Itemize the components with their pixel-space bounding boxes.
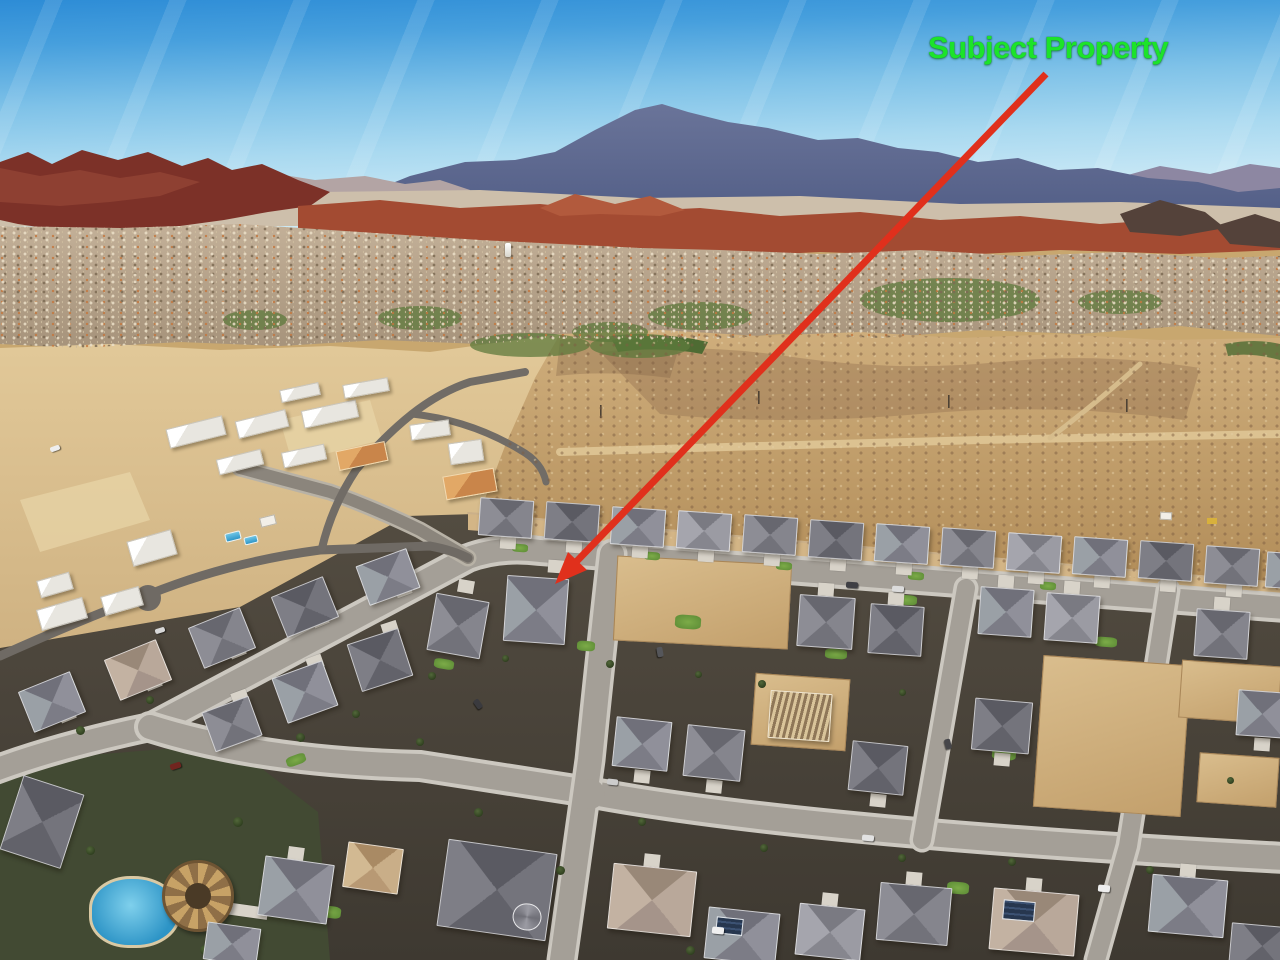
subject-property-label: Subject Property bbox=[928, 30, 1168, 66]
scene-objects bbox=[0, 0, 1280, 960]
car bbox=[712, 926, 725, 934]
shrub bbox=[556, 866, 565, 875]
lawn-patch bbox=[1095, 636, 1118, 648]
shrub bbox=[758, 680, 766, 688]
house-roof bbox=[808, 519, 865, 561]
house-roof bbox=[257, 855, 335, 924]
driveway bbox=[548, 559, 565, 573]
driveway bbox=[993, 752, 1010, 766]
driveway bbox=[869, 793, 886, 808]
shrub bbox=[86, 846, 95, 855]
house-roof bbox=[796, 594, 855, 650]
community-pool bbox=[224, 530, 242, 543]
subject-property-house bbox=[503, 575, 569, 645]
car bbox=[862, 834, 874, 841]
apartment-building bbox=[409, 419, 451, 440]
driveway bbox=[457, 578, 475, 594]
driveway bbox=[905, 871, 922, 885]
aerial-photo: Subject Property bbox=[0, 0, 1280, 960]
shrub bbox=[760, 844, 768, 852]
driveway bbox=[888, 591, 905, 605]
shrub bbox=[1008, 858, 1016, 866]
driveway bbox=[633, 769, 650, 784]
shrub bbox=[352, 710, 360, 718]
shrub bbox=[606, 660, 614, 668]
house-roof bbox=[436, 839, 557, 941]
apartment-building bbox=[36, 572, 74, 599]
house-roof bbox=[478, 497, 535, 539]
house-roof bbox=[876, 882, 953, 946]
lawn-patch bbox=[577, 640, 596, 651]
house-roof bbox=[940, 527, 997, 569]
car bbox=[49, 444, 60, 452]
house-roof bbox=[426, 593, 489, 659]
shrub bbox=[233, 817, 243, 827]
lawn-patch bbox=[675, 614, 702, 630]
dirt-lot bbox=[612, 555, 791, 649]
driveway bbox=[1254, 737, 1271, 751]
apartment-building bbox=[100, 586, 144, 616]
house-roof bbox=[767, 690, 832, 742]
house-roof bbox=[18, 671, 86, 733]
driveway bbox=[1179, 863, 1196, 877]
car bbox=[892, 586, 904, 593]
shrub bbox=[474, 808, 483, 817]
house-roof bbox=[971, 698, 1033, 755]
apartment-building bbox=[126, 529, 177, 567]
house-roof bbox=[271, 576, 339, 638]
apartment-building bbox=[301, 399, 360, 428]
shrub bbox=[76, 726, 85, 735]
house-roof bbox=[104, 639, 172, 701]
house-roof bbox=[347, 628, 414, 692]
shrub bbox=[899, 689, 906, 696]
house-roof bbox=[1072, 536, 1129, 578]
house-roof bbox=[271, 660, 338, 724]
apartment-building bbox=[342, 377, 390, 399]
construction-machine bbox=[1207, 518, 1217, 524]
house-roof bbox=[355, 548, 420, 606]
car bbox=[606, 778, 618, 785]
driveway bbox=[1064, 580, 1081, 594]
house-roof bbox=[794, 903, 865, 960]
shrub bbox=[1146, 866, 1154, 874]
lawn-patch bbox=[285, 752, 307, 768]
shrub bbox=[502, 655, 509, 662]
house-roof bbox=[1228, 922, 1280, 960]
house-roof bbox=[848, 740, 909, 796]
gazebo bbox=[162, 860, 234, 932]
shrub bbox=[416, 738, 424, 746]
lawn-patch bbox=[433, 657, 454, 670]
car bbox=[944, 738, 952, 749]
house-roof bbox=[203, 921, 262, 960]
shrub bbox=[638, 818, 646, 826]
shed bbox=[1160, 512, 1172, 521]
driveway bbox=[705, 779, 722, 794]
shrub bbox=[428, 672, 436, 680]
driveway bbox=[643, 853, 660, 868]
shrub bbox=[686, 946, 695, 955]
apartment-building-orange bbox=[442, 468, 497, 501]
community-pool bbox=[243, 534, 259, 545]
house-roof bbox=[1235, 689, 1280, 738]
shrub bbox=[695, 671, 702, 678]
dirt-lot bbox=[1196, 752, 1279, 807]
house-roof bbox=[612, 716, 673, 772]
shrub bbox=[146, 696, 154, 704]
apartment-building bbox=[216, 449, 265, 476]
car bbox=[656, 647, 664, 658]
apartment-building-orange bbox=[335, 441, 388, 471]
driveway bbox=[1025, 877, 1042, 891]
shrub bbox=[898, 854, 906, 862]
house-roof bbox=[342, 841, 404, 894]
house-roof bbox=[1006, 532, 1063, 574]
house-roof bbox=[1043, 592, 1100, 644]
apartment-building bbox=[448, 439, 485, 466]
house-roof bbox=[742, 514, 799, 556]
car bbox=[1098, 884, 1111, 892]
driveway bbox=[1214, 596, 1231, 610]
house-roof bbox=[201, 696, 262, 753]
shed bbox=[259, 514, 277, 528]
apartment-building bbox=[235, 409, 290, 439]
apartment-building bbox=[281, 444, 327, 469]
house-roof bbox=[867, 603, 924, 657]
car bbox=[154, 626, 165, 634]
apartment-building bbox=[279, 381, 321, 402]
driveway bbox=[821, 892, 838, 907]
apartment-building bbox=[165, 415, 226, 448]
house-roof bbox=[1265, 551, 1280, 590]
house-roof bbox=[1193, 608, 1250, 660]
house-roof bbox=[607, 863, 697, 937]
house-roof bbox=[188, 607, 256, 669]
shrub bbox=[296, 733, 305, 742]
gazebo-center bbox=[185, 883, 211, 909]
solar-panels bbox=[1002, 899, 1036, 922]
house-roof bbox=[1204, 545, 1261, 587]
house-roof bbox=[682, 724, 745, 782]
house-roof bbox=[1138, 540, 1195, 582]
car bbox=[473, 698, 484, 710]
shrub bbox=[1227, 777, 1234, 784]
house-roof bbox=[988, 887, 1079, 956]
house-roof bbox=[0, 775, 84, 869]
house-roof bbox=[1148, 874, 1229, 938]
car bbox=[846, 582, 858, 589]
house-roof bbox=[610, 506, 667, 548]
driveway bbox=[818, 582, 835, 596]
apartment-building bbox=[36, 597, 88, 631]
car bbox=[169, 761, 181, 770]
lawn-patch bbox=[825, 648, 848, 660]
house-roof bbox=[544, 501, 601, 543]
house-roof bbox=[874, 523, 931, 565]
house-roof bbox=[676, 510, 733, 552]
dirt-lot bbox=[1033, 655, 1191, 817]
driveway bbox=[998, 574, 1015, 588]
water-tower bbox=[505, 243, 511, 257]
house-roof bbox=[977, 586, 1034, 638]
turret-roof bbox=[511, 901, 543, 932]
